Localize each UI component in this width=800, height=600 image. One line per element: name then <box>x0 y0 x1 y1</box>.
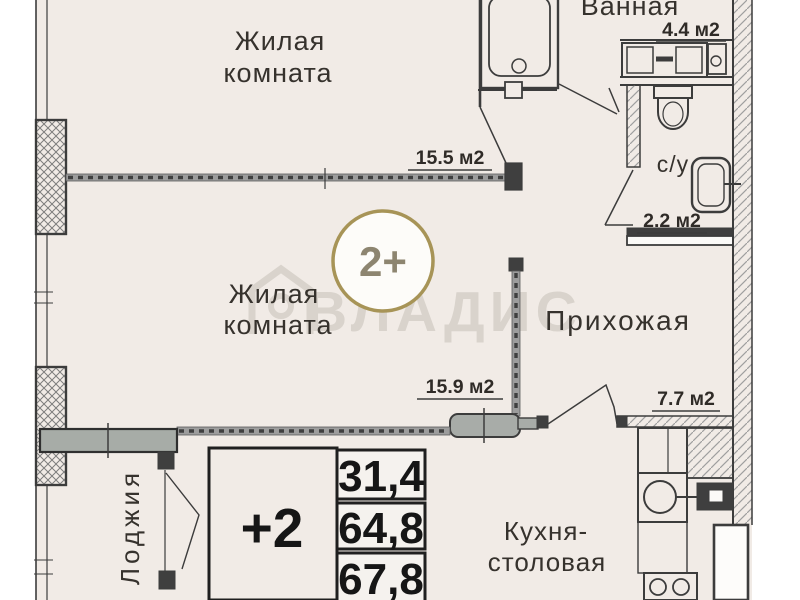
living1-area-label: 15.5 м2 <box>416 147 485 169</box>
hallway-label: Прихожая <box>545 305 691 336</box>
wc-label: с/у <box>657 151 689 177</box>
wall-pier <box>36 120 66 234</box>
hallway-kitchen-wall <box>617 416 733 427</box>
rooms-badge: 2+ <box>333 211 433 311</box>
floor-plan: ВЛАДИС <box>0 0 800 600</box>
stamp-value-3: 67,8 <box>338 555 424 600</box>
living2-area-label: 15.9 м2 <box>426 376 495 398</box>
stamp-rooms-label: +2 <box>241 497 304 559</box>
living1-label-line1: Жилая <box>235 26 325 56</box>
kitchen-label-line2: столовая <box>488 547 607 577</box>
kitchen-window <box>714 525 748 600</box>
living2-label-line1: Жилая <box>229 279 319 309</box>
bathroom-label: Ванная <box>581 0 679 21</box>
partition-living2-kitchen <box>177 427 450 435</box>
loggia-label: Лоджия <box>115 469 145 585</box>
living1-label-line2: комната <box>223 58 332 88</box>
loggia-wall <box>40 423 177 458</box>
living2-label-line2: комната <box>223 310 332 340</box>
kitchen-label-line1: Кухня- <box>504 516 588 546</box>
stamp-value-2: 64,8 <box>338 504 424 553</box>
wc-area-label: 2.2 м2 <box>643 210 701 232</box>
wall-pier <box>36 367 66 485</box>
badge-label: 2+ <box>359 238 407 285</box>
stamp-value-1: 31,4 <box>338 452 424 501</box>
hallway-area-label: 7.7 м2 <box>657 388 715 410</box>
bathroom-area-label: 4.4 м2 <box>662 19 720 41</box>
